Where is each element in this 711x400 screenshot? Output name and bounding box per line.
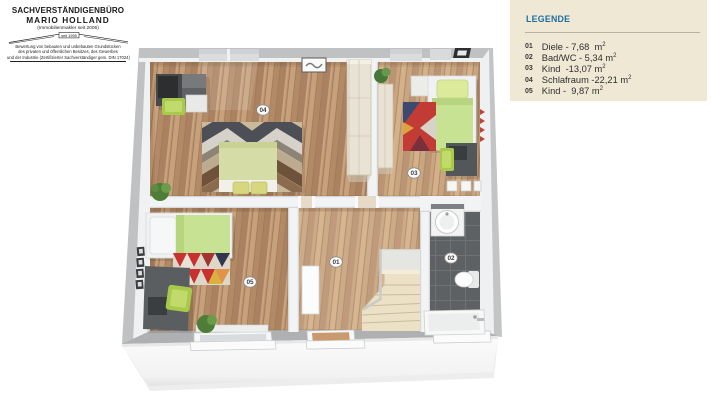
svg-text:02: 02	[447, 255, 455, 262]
svg-text:01: 01	[332, 259, 340, 266]
svg-text:05: 05	[246, 279, 254, 286]
svg-text:03: 03	[410, 170, 418, 177]
svg-text:04: 04	[259, 107, 267, 114]
